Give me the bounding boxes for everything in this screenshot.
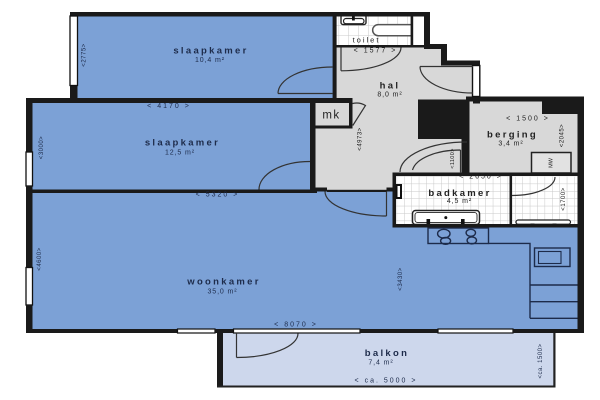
svg-text:< 5320 >: < 5320 > — [196, 192, 240, 199]
svg-text:< 1500 >: < 1500 > — [506, 116, 550, 123]
svg-text:< ca. 5000 >: < ca. 5000 > — [355, 378, 418, 385]
svg-text:10,4 m²: 10,4 m² — [195, 57, 225, 64]
svg-text:12,5 m²: 12,5 m² — [165, 150, 195, 157]
svg-text:7,4 m²: 7,4 m² — [368, 360, 393, 367]
svg-text:<1100>: <1100> — [450, 148, 456, 168]
svg-text:<3430>: <3430> — [398, 267, 404, 290]
svg-text:<2045>: <2045> — [560, 124, 566, 147]
svg-text:<ca. 1500>: <ca. 1500> — [538, 343, 544, 378]
svg-text:mk: mk — [322, 110, 340, 122]
svg-text:4,5 m²: 4,5 m² — [447, 198, 472, 205]
svg-text:toilet: toilet — [353, 36, 381, 45]
svg-text:slaapkamer: slaapkamer — [173, 46, 248, 57]
svg-text:<3000>: <3000> — [39, 136, 45, 159]
svg-text:berging: berging — [487, 130, 538, 141]
svg-text:3,4 m²: 3,4 m² — [498, 141, 523, 148]
svg-text:hal: hal — [380, 81, 401, 92]
svg-text:MW: MW — [549, 157, 555, 168]
svg-text:<1700>: <1700> — [561, 187, 567, 210]
svg-text:< 2650 >: < 2650 > — [459, 174, 503, 181]
svg-text:woonkamer: woonkamer — [186, 277, 261, 288]
svg-text:slaapkamer: slaapkamer — [145, 138, 220, 149]
svg-text:< 1577 >: < 1577 > — [354, 47, 398, 54]
svg-text:<4973>: <4973> — [358, 127, 364, 150]
svg-text:< 4170 >: < 4170 > — [147, 103, 191, 110]
svg-text:< 8070 >: < 8070 > — [274, 322, 318, 329]
svg-text:35,0 m²: 35,0 m² — [207, 289, 237, 296]
svg-text:<4600>: <4600> — [37, 247, 43, 270]
svg-text:<2775>: <2775> — [82, 43, 88, 66]
svg-text:balkon: balkon — [365, 348, 409, 359]
svg-text:8,0 m²: 8,0 m² — [377, 92, 402, 99]
